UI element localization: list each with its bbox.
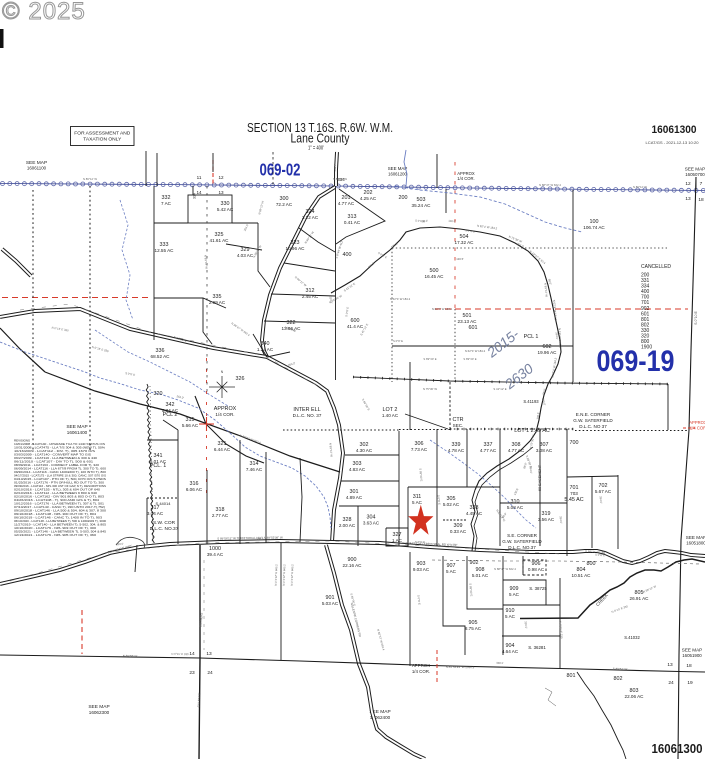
svg-text:19.96 AC: 19.96 AC bbox=[538, 350, 558, 355]
svg-text:803: 803 bbox=[630, 688, 639, 694]
svg-text:12.55 AC: 12.55 AC bbox=[155, 248, 175, 253]
svg-text:5.08 AC: 5.08 AC bbox=[507, 505, 524, 510]
svg-text:N 18°47' E 92.4: N 18°47' E 92.4 bbox=[558, 328, 563, 348]
svg-text:2.99 AC: 2.99 AC bbox=[209, 300, 226, 305]
svg-text:10.96 AC: 10.96 AC bbox=[286, 246, 306, 251]
svg-text:N 89°12' W: N 89°12' W bbox=[83, 177, 97, 181]
svg-text:N 62°4' W 184.2: N 62°4' W 184.2 bbox=[465, 349, 486, 353]
svg-text:501: 501 bbox=[463, 313, 472, 319]
svg-text:339: 339 bbox=[452, 442, 461, 448]
svg-text:18: 18 bbox=[698, 197, 704, 203]
svg-text:D.L.C. NO.37: D.L.C. NO.37 bbox=[508, 545, 536, 550]
svg-text:60 EASEMENT: 60 EASEMENT bbox=[538, 464, 542, 491]
svg-text:100: 100 bbox=[590, 219, 599, 225]
svg-text:S 41°12' E: S 41°12' E bbox=[493, 387, 506, 391]
svg-text:9.03 AC: 9.03 AC bbox=[413, 567, 430, 572]
svg-text:88.0': 88.0' bbox=[422, 219, 429, 224]
svg-text:PCL 2: PCL 2 bbox=[163, 412, 178, 418]
svg-text:341: 341 bbox=[154, 453, 163, 459]
svg-text:314: 314 bbox=[250, 461, 259, 467]
svg-text:0.33 AC: 0.33 AC bbox=[450, 529, 467, 534]
svg-text:328: 328 bbox=[343, 517, 352, 523]
svg-text:N 89°55' W: N 89°55' W bbox=[123, 654, 138, 658]
svg-text:19: 19 bbox=[687, 680, 693, 686]
svg-text:2.77 AC: 2.77 AC bbox=[212, 513, 229, 518]
svg-text:0.98 AC: 0.98 AC bbox=[528, 567, 545, 572]
svg-text:264.0': 264.0' bbox=[559, 516, 564, 524]
svg-text:903: 903 bbox=[417, 561, 426, 567]
svg-text:900: 900 bbox=[348, 557, 357, 563]
svg-text:16061100: 16061100 bbox=[27, 166, 47, 171]
svg-text:INTER ELL: INTER ELL bbox=[293, 407, 320, 413]
svg-text:HWY: HWY bbox=[333, 165, 337, 172]
svg-text:1.24 AC: 1.24 AC bbox=[257, 347, 274, 352]
svg-text:S. 36281: S. 36281 bbox=[528, 645, 546, 650]
svg-text:3.22 AC: 3.22 AC bbox=[302, 215, 319, 220]
svg-text:333: 333 bbox=[160, 242, 169, 248]
svg-text:4.89 AC: 4.89 AC bbox=[346, 495, 363, 500]
svg-text:908: 908 bbox=[476, 567, 485, 573]
svg-text:12: 12 bbox=[218, 175, 224, 180]
svg-text:1/4 COR.: 1/4 COR. bbox=[457, 176, 474, 181]
svg-text:308: 308 bbox=[512, 442, 521, 448]
svg-text:600: 600 bbox=[351, 318, 360, 324]
svg-text:1.40 AC: 1.40 AC bbox=[382, 413, 399, 418]
svg-text:11: 11 bbox=[197, 175, 202, 180]
svg-text:16051800: 16051800 bbox=[686, 541, 705, 546]
svg-text:326: 326 bbox=[236, 376, 245, 382]
svg-text:12/13/2021 - LCAT176 - NPL 905: 12/13/2021 - LCAT176 - NPL 905 OUT OF T)… bbox=[14, 533, 96, 537]
svg-text:S 89°51' W: S 89°51' W bbox=[613, 667, 628, 672]
svg-text:13: 13 bbox=[218, 190, 224, 195]
svg-text:22.06 AC: 22.06 AC bbox=[625, 694, 645, 699]
svg-text:302: 302 bbox=[360, 442, 369, 448]
svg-text:S 0°10 E: S 0°10 E bbox=[694, 311, 698, 325]
svg-text:26.91 AC: 26.91 AC bbox=[630, 596, 650, 601]
svg-text:4.45 AC: 4.45 AC bbox=[466, 511, 483, 516]
svg-text:4.64 AC: 4.64 AC bbox=[502, 649, 519, 654]
svg-text:202: 202 bbox=[364, 190, 373, 196]
svg-text:16062300: 16062300 bbox=[89, 710, 110, 715]
svg-text:5 AC: 5 AC bbox=[446, 569, 457, 574]
svg-text:S.E. CORNER: S.E. CORNER bbox=[507, 533, 538, 538]
svg-text:602: 602 bbox=[543, 344, 552, 350]
svg-text:318: 318 bbox=[216, 507, 225, 513]
svg-text:68.52 AC: 68.52 AC bbox=[151, 354, 171, 359]
svg-text:500: 500 bbox=[430, 268, 439, 274]
svg-text:16051900: 16051900 bbox=[682, 653, 702, 658]
svg-text:330.5': 330.5' bbox=[496, 661, 504, 665]
svg-text:5 AC: 5 AC bbox=[412, 500, 423, 505]
svg-text:16050700: 16050700 bbox=[685, 172, 705, 177]
svg-text:N 0°4'12" E 660.2: N 0°4'12" E 660.2 bbox=[274, 564, 279, 586]
svg-text:300: 300 bbox=[280, 196, 289, 202]
svg-text:323: 323 bbox=[291, 240, 300, 246]
svg-text:7: 7 bbox=[700, 181, 703, 187]
svg-text:301: 301 bbox=[350, 489, 359, 495]
svg-text:130.5': 130.5' bbox=[456, 257, 464, 261]
svg-text:N 75°30' W: N 75°30' W bbox=[423, 387, 437, 391]
svg-text:16061300: 16061300 bbox=[652, 124, 697, 136]
svg-text:330.5': 330.5' bbox=[524, 621, 529, 629]
svg-text:804: 804 bbox=[577, 567, 586, 573]
svg-text:264.0': 264.0' bbox=[529, 466, 534, 474]
svg-text:702: 702 bbox=[599, 483, 608, 489]
svg-text:17.32 AC: 17.32 AC bbox=[455, 240, 475, 245]
svg-text:906: 906 bbox=[532, 561, 541, 567]
svg-text:332: 332 bbox=[162, 195, 171, 201]
svg-text:7.73 AC: 7.73 AC bbox=[411, 447, 428, 452]
svg-text:23.13 AC: 23.13 AC bbox=[458, 319, 478, 324]
svg-text:APPROX: APPROX bbox=[689, 420, 705, 425]
svg-text:39.4 AC: 39.4 AC bbox=[207, 552, 224, 557]
svg-text:106.74 AC: 106.74 AC bbox=[583, 225, 605, 230]
svg-text:1000: 1000 bbox=[209, 546, 221, 552]
svg-text:4.83 AC: 4.83 AC bbox=[349, 467, 366, 472]
svg-text:319: 319 bbox=[542, 511, 551, 517]
svg-text:G.W. SATERFIELD: G.W. SATERFIELD bbox=[573, 418, 613, 423]
svg-text:13: 13 bbox=[206, 651, 212, 657]
svg-text:340: 340 bbox=[261, 341, 270, 347]
svg-text:504: 504 bbox=[460, 234, 469, 240]
svg-text:7 AC: 7 AC bbox=[161, 201, 172, 206]
svg-text:S.41193: S.41193 bbox=[523, 399, 539, 404]
svg-text:CTR: CTR bbox=[452, 417, 463, 423]
svg-text:307: 307 bbox=[540, 442, 549, 448]
svg-text:325: 325 bbox=[215, 232, 224, 238]
svg-text:200: 200 bbox=[399, 195, 408, 201]
svg-text:N 62°4' W 184.2: N 62°4' W 184.2 bbox=[432, 307, 453, 311]
svg-text:N 88°47' W 662.4: N 88°47' W 662.4 bbox=[494, 567, 516, 571]
svg-text:S.41032: S.41032 bbox=[624, 635, 640, 640]
svg-text:310: 310 bbox=[511, 499, 520, 505]
svg-text:N 89°12' W: N 89°12' W bbox=[333, 177, 347, 181]
svg-text:801: 801 bbox=[567, 673, 576, 679]
svg-text:324: 324 bbox=[306, 209, 315, 215]
svg-text:905: 905 bbox=[469, 620, 478, 626]
svg-text:337: 337 bbox=[484, 442, 493, 448]
svg-text:16061400: 16061400 bbox=[67, 430, 88, 435]
svg-text:© 2025: © 2025 bbox=[2, 0, 86, 25]
svg-text:N 0°15' E 330: N 0°15' E 330 bbox=[171, 652, 189, 656]
svg-text:3.63 AC: 3.63 AC bbox=[363, 521, 380, 526]
svg-text:400: 400 bbox=[343, 252, 352, 258]
svg-text:N 0°4'12" E 660.2: N 0°4'12" E 660.2 bbox=[290, 564, 295, 586]
svg-text:LOT 1 2.49 AC: LOT 1 2.49 AC bbox=[514, 428, 550, 434]
svg-text:24: 24 bbox=[668, 680, 674, 686]
svg-text:13: 13 bbox=[685, 196, 691, 202]
svg-text:312: 312 bbox=[306, 288, 315, 294]
svg-text:16061300: 16061300 bbox=[652, 741, 703, 756]
svg-text:16.45 AC: 16.45 AC bbox=[425, 274, 445, 279]
svg-text:2.00 AC: 2.00 AC bbox=[339, 523, 356, 528]
svg-text:APPROX: APPROX bbox=[214, 406, 237, 412]
svg-text:2.45 AC: 2.45 AC bbox=[302, 294, 319, 299]
svg-text:3.56 AC: 3.56 AC bbox=[538, 517, 555, 522]
svg-text:1/4 COR.: 1/4 COR. bbox=[215, 412, 234, 417]
svg-text:069-02: 069-02 bbox=[260, 160, 301, 180]
svg-text:S.44014: S.44014 bbox=[156, 501, 172, 506]
svg-text:902: 902 bbox=[470, 560, 479, 566]
svg-text:901: 901 bbox=[326, 595, 335, 601]
svg-text:303: 303 bbox=[353, 461, 362, 467]
svg-text:N 62°4' W 184.2: N 62°4' W 184.2 bbox=[390, 297, 411, 301]
svg-text:4.30 AC: 4.30 AC bbox=[356, 448, 373, 453]
svg-text:8.75 AC: 8.75 AC bbox=[465, 626, 482, 631]
svg-text:304: 304 bbox=[367, 515, 376, 521]
svg-text:800: 800 bbox=[587, 561, 596, 567]
svg-text:S. 38725: S. 38725 bbox=[529, 586, 547, 591]
svg-text:SEE MAP: SEE MAP bbox=[686, 535, 705, 540]
svg-text:N 89°53'41" W 2636.5: N 89°53'41" W 2636.5 bbox=[446, 665, 475, 670]
svg-text:5.03 AC: 5.03 AC bbox=[322, 601, 339, 606]
svg-text:LCAT/GS - 2021-12-13 10:20: LCAT/GS - 2021-12-13 10:20 bbox=[646, 140, 700, 145]
svg-text:D.L.C. NO. 37: D.L.C. NO. 37 bbox=[293, 413, 322, 418]
svg-text:5 AC: 5 AC bbox=[505, 614, 516, 619]
svg-text:335: 335 bbox=[213, 294, 222, 300]
svg-text:311: 311 bbox=[413, 494, 422, 500]
svg-text:E.N.E. CORNER: E.N.E. CORNER bbox=[576, 412, 611, 417]
svg-text:TAXATION ONLY: TAXATION ONLY bbox=[83, 137, 121, 142]
svg-text:41.61 AC: 41.61 AC bbox=[210, 238, 230, 243]
svg-text:CANCELLED: CANCELLED bbox=[641, 264, 671, 270]
svg-text:N 0°4'12" E 660.2: N 0°4'12" E 660.2 bbox=[282, 564, 287, 586]
svg-text:D.L.C. NO 37: D.L.C. NO 37 bbox=[579, 424, 607, 429]
svg-text:5.67 AC: 5.67 AC bbox=[595, 489, 612, 494]
svg-text:321: 321 bbox=[218, 441, 227, 447]
svg-text:SEE MAP: SEE MAP bbox=[388, 166, 408, 171]
svg-text:909: 909 bbox=[510, 586, 519, 592]
svg-text:13: 13 bbox=[667, 662, 673, 668]
svg-text:SEC.: SEC. bbox=[453, 423, 464, 428]
svg-text:0.41 AC: 0.41 AC bbox=[344, 220, 361, 225]
svg-text:329: 329 bbox=[241, 247, 250, 253]
svg-text:16061200: 16061200 bbox=[388, 172, 407, 177]
svg-text:316: 316 bbox=[190, 481, 199, 487]
svg-text:7.46 AC: 7.46 AC bbox=[246, 467, 263, 472]
svg-text:315: 315 bbox=[186, 417, 195, 423]
svg-text:306: 306 bbox=[415, 441, 424, 447]
svg-text:342: 342 bbox=[166, 402, 175, 408]
svg-text:N 89°12' W: N 89°12' W bbox=[633, 185, 647, 189]
svg-text:700: 700 bbox=[570, 440, 579, 446]
svg-text:S 89°30' E: S 89°30' E bbox=[463, 357, 476, 361]
svg-text:5 AC: 5 AC bbox=[509, 592, 520, 597]
svg-text:338: 338 bbox=[470, 505, 479, 511]
svg-text:910: 910 bbox=[506, 608, 515, 614]
svg-text:503: 503 bbox=[417, 197, 426, 203]
svg-text:1900: 1900 bbox=[641, 345, 652, 351]
svg-text:4.77 AC: 4.77 AC bbox=[508, 448, 525, 453]
svg-text:6.44 AC: 6.44 AC bbox=[214, 447, 231, 452]
svg-text:1 AC: 1 AC bbox=[392, 538, 403, 543]
svg-text:320: 320 bbox=[154, 391, 163, 397]
svg-text:FOR ASSESSMENT AND: FOR ASSESSMENT AND bbox=[74, 131, 130, 136]
svg-text:309: 309 bbox=[454, 523, 463, 529]
svg-text:6.06 AC: 6.06 AC bbox=[186, 487, 203, 492]
svg-text:10.51 AC: 10.51 AC bbox=[572, 573, 592, 578]
svg-text:N 88°47' W 662.4: N 88°47' W 662.4 bbox=[539, 183, 561, 187]
svg-text:5.02 AC: 5.02 AC bbox=[443, 502, 460, 507]
svg-text:PCL. 1: PCL. 1 bbox=[150, 463, 166, 469]
svg-text:41.4 AC: 41.4 AC bbox=[347, 324, 364, 329]
svg-text:S 0°8' E: S 0°8' E bbox=[393, 339, 403, 343]
svg-text:4.77 AC: 4.77 AC bbox=[480, 448, 497, 453]
svg-text:069-19: 069-19 bbox=[597, 345, 675, 378]
svg-text:305: 305 bbox=[447, 496, 456, 502]
svg-text:5.42 AC: 5.42 AC bbox=[217, 207, 234, 212]
svg-text:904: 904 bbox=[506, 643, 515, 649]
svg-text:24: 24 bbox=[207, 670, 213, 676]
svg-text:201: 201 bbox=[342, 195, 351, 201]
svg-text:35.24 AC: 35.24 AC bbox=[412, 203, 432, 208]
svg-text:336: 336 bbox=[156, 348, 165, 354]
svg-text:5.66 AC: 5.66 AC bbox=[182, 423, 199, 428]
svg-text:APPROX: APPROX bbox=[412, 663, 430, 668]
svg-text:1" = 400': 1" = 400' bbox=[308, 146, 324, 152]
svg-text:327: 327 bbox=[393, 532, 402, 538]
svg-text:72.2 AC: 72.2 AC bbox=[276, 202, 293, 207]
svg-text:23: 23 bbox=[189, 670, 195, 676]
svg-text:4.25 AC: 4.25 AC bbox=[360, 196, 377, 201]
svg-text:703: 703 bbox=[570, 491, 578, 496]
svg-text:SEE MAP: SEE MAP bbox=[685, 167, 705, 172]
svg-text:22.16 AC: 22.16 AC bbox=[343, 563, 363, 568]
svg-text:330: 330 bbox=[221, 201, 230, 207]
svg-text:1/4 COR.: 1/4 COR. bbox=[412, 669, 430, 674]
svg-text:907: 907 bbox=[447, 563, 456, 569]
svg-text:LOT 2: LOT 2 bbox=[383, 407, 398, 413]
svg-text:SEE MAP: SEE MAP bbox=[682, 648, 702, 653]
svg-text:1/4 COR: 1/4 COR bbox=[690, 426, 705, 431]
svg-text:264.0': 264.0' bbox=[599, 496, 604, 504]
svg-text:3.04 AC: 3.04 AC bbox=[147, 511, 164, 516]
svg-text:130.5': 130.5' bbox=[448, 219, 456, 223]
svg-text:5.45 AC: 5.45 AC bbox=[564, 497, 583, 503]
svg-text:D.L.C. NO.37: D.L.C. NO.37 bbox=[150, 526, 179, 532]
svg-text:4.78 AC: 4.78 AC bbox=[448, 448, 465, 453]
svg-text:5.01 AC: 5.01 AC bbox=[472, 573, 489, 578]
svg-text:12: 12 bbox=[685, 181, 691, 187]
svg-text:3.08 AC: 3.08 AC bbox=[536, 448, 553, 453]
svg-text:PCL 1: PCL 1 bbox=[524, 334, 539, 340]
svg-text:S 89°30' E: S 89°30' E bbox=[423, 357, 436, 361]
svg-text:701: 701 bbox=[570, 485, 579, 491]
svg-text:S.W. COR: S.W. COR bbox=[153, 520, 176, 526]
svg-text:601: 601 bbox=[469, 325, 478, 331]
svg-text:4.77 AC: 4.77 AC bbox=[338, 201, 355, 206]
svg-text:802: 802 bbox=[614, 676, 623, 682]
svg-text:14: 14 bbox=[189, 651, 195, 657]
svg-text:18: 18 bbox=[686, 663, 692, 669]
svg-text:14: 14 bbox=[196, 190, 202, 195]
svg-text:G.W. SATERFIELD: G.W. SATERFIELD bbox=[502, 539, 542, 544]
svg-text:313: 313 bbox=[348, 214, 357, 220]
svg-text:Lane County: Lane County bbox=[291, 132, 351, 146]
